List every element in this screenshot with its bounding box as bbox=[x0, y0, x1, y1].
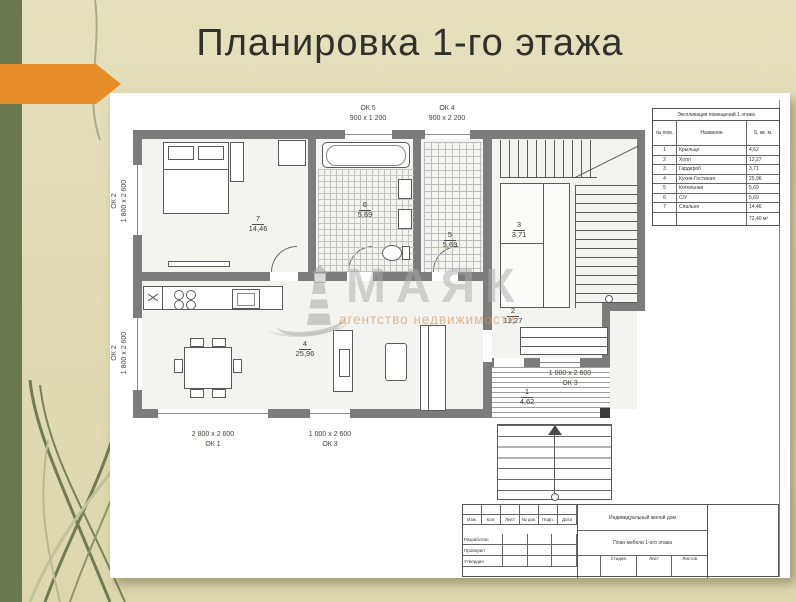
col-name: Название bbox=[677, 121, 747, 145]
room7-area: 14,46 bbox=[238, 225, 278, 234]
spacer bbox=[578, 556, 600, 576]
cell: 5 bbox=[653, 184, 677, 193]
stage-row: Стадия Лист Листов bbox=[578, 556, 707, 576]
col-area: S, кв. м. bbox=[747, 121, 779, 145]
door-opening bbox=[483, 330, 492, 362]
cell bbox=[520, 505, 539, 515]
cell bbox=[552, 534, 577, 545]
table-total-row: 72,40 м² bbox=[653, 213, 779, 225]
sink bbox=[398, 179, 412, 199]
sheet-title: План мебели 1-ого этажа bbox=[578, 531, 707, 556]
ok5-size: 900 x 1 200 bbox=[328, 114, 408, 124]
ok1-size: 2 800 x 2 600 bbox=[173, 430, 253, 440]
cell bbox=[539, 505, 558, 515]
stove-burner bbox=[174, 290, 184, 300]
cell bbox=[528, 556, 553, 567]
cell bbox=[503, 556, 528, 567]
toilet bbox=[382, 245, 402, 261]
cell: Гардероб bbox=[677, 165, 747, 174]
room-label-4: 4 25,96 bbox=[285, 340, 325, 358]
signature-row: Разработал bbox=[463, 534, 577, 545]
cell bbox=[482, 505, 501, 515]
cell bbox=[528, 545, 553, 556]
bedroom-wardrobe bbox=[278, 140, 306, 166]
room-label-3: 3 3,71 bbox=[499, 221, 539, 239]
col-num: № пом. bbox=[653, 121, 677, 145]
ok3-mark: ОК 3 bbox=[290, 440, 370, 450]
stage-cell: Стадия bbox=[600, 556, 636, 576]
room-label-1: 1 4,62 bbox=[507, 388, 547, 406]
rev-header: Дата bbox=[558, 515, 577, 525]
project-name: Индивидуальный жилой дом bbox=[578, 505, 707, 531]
blanket-line bbox=[164, 169, 228, 170]
cell: 4,62 bbox=[747, 146, 779, 155]
window-ok3-bottom bbox=[310, 409, 350, 418]
boiler-room-floor bbox=[424, 142, 482, 272]
door-opening bbox=[494, 358, 524, 367]
cell: 3 bbox=[653, 165, 677, 174]
label-ok3-bottom: 1 000 x 2 600 ОК 3 bbox=[290, 430, 370, 450]
total-area: 72,40 м² bbox=[747, 213, 779, 225]
table-row: 5 Котельная 5,69 bbox=[653, 184, 779, 194]
chair bbox=[190, 389, 204, 398]
floorplan-panel: ОК 5 900 x 1 200 ОК 4 900 x 2 200 ОК 2 1… bbox=[110, 93, 790, 578]
cell bbox=[501, 505, 520, 515]
porch-column bbox=[600, 408, 610, 418]
pillow bbox=[168, 146, 194, 160]
window-ok2-upper bbox=[133, 165, 142, 235]
wall bbox=[637, 130, 645, 311]
bathtub bbox=[322, 142, 410, 168]
cell: Спальня bbox=[677, 203, 747, 212]
table-row: 7 Спальня 14,46 bbox=[653, 203, 779, 213]
cell: 5,69 bbox=[747, 194, 779, 203]
chair bbox=[212, 389, 226, 398]
nightstand bbox=[230, 142, 244, 182]
table-row: 4 Кухня-Гостиная 25,96 bbox=[653, 175, 779, 185]
cell bbox=[552, 545, 577, 556]
cell bbox=[503, 545, 528, 556]
label-ok3-porch: 1 000 x 2 600 ОК 3 bbox=[525, 369, 615, 389]
window-ok4 bbox=[425, 130, 470, 139]
ok2-size: 1 800 x 2 600 bbox=[120, 166, 130, 236]
wall bbox=[413, 139, 421, 280]
explication-table: Экспликация помещений 1 этажа № пом. Наз… bbox=[652, 108, 780, 226]
rev-header: № док. bbox=[520, 515, 539, 525]
cell bbox=[558, 505, 577, 515]
kitchen-counter bbox=[143, 286, 283, 310]
room3-area: 3,71 bbox=[499, 231, 539, 240]
label-ok2-lower: ОК 2 1 800 x 2 600 bbox=[110, 318, 128, 388]
room-label-7: 7 14,46 bbox=[238, 215, 278, 233]
slide: Планировка 1-го этажа bbox=[0, 0, 796, 602]
ok4-size: 900 x 2 200 bbox=[407, 114, 487, 124]
dining-table bbox=[184, 347, 232, 389]
room5-area: 5,69 bbox=[430, 241, 470, 250]
cell bbox=[677, 213, 747, 225]
table-title: Экспликация помещений 1 этажа bbox=[653, 109, 779, 121]
room6-area: 5,69 bbox=[345, 211, 385, 220]
cell: 1 bbox=[653, 146, 677, 155]
rev-header: Лист bbox=[501, 515, 520, 525]
stamp-right-cell bbox=[708, 505, 780, 578]
ok2-size: 1 800 x 2 600 bbox=[120, 318, 130, 388]
stage-cell: Листов bbox=[671, 556, 707, 576]
window-ok1 bbox=[158, 409, 268, 418]
signature-row: Проверил bbox=[463, 545, 577, 556]
room-label-5: 5 5,69 bbox=[430, 231, 470, 249]
tv-console bbox=[333, 330, 353, 392]
chair bbox=[233, 359, 242, 373]
stage-cell: Лист bbox=[636, 556, 672, 576]
table-row: 6 С/У 5,69 bbox=[653, 194, 779, 204]
label-ok4: ОК 4 900 x 2 200 bbox=[407, 104, 487, 124]
signature-row: Утвердил bbox=[463, 556, 577, 567]
sofa bbox=[420, 325, 446, 411]
rev-header: Подп. bbox=[539, 515, 558, 525]
cell: Котельная bbox=[677, 184, 747, 193]
watermark-subtitle: агентство недвижимости bbox=[339, 313, 516, 327]
sink bbox=[398, 209, 412, 229]
sign-label: Разработал bbox=[463, 534, 503, 545]
window-ok5 bbox=[345, 130, 392, 139]
label-ok5: ОК 5 900 x 1 200 bbox=[328, 104, 408, 124]
kitchen-sink-bowl bbox=[237, 293, 255, 306]
toilet-tank bbox=[402, 246, 410, 260]
cell: 14,46 bbox=[747, 203, 779, 212]
wall bbox=[308, 139, 316, 280]
rev-header: Изм. bbox=[463, 515, 482, 525]
stairs-post bbox=[605, 295, 613, 303]
chair bbox=[174, 359, 183, 373]
cell bbox=[528, 534, 553, 545]
cell: 5,69 bbox=[747, 184, 779, 193]
stove-burner bbox=[186, 300, 196, 310]
orange-arrow-shape bbox=[0, 64, 96, 104]
cell: Крыльцо bbox=[677, 146, 747, 155]
cell: 7 bbox=[653, 203, 677, 212]
cell: 12,27 bbox=[747, 156, 779, 165]
cell bbox=[653, 213, 677, 225]
cell: 6 bbox=[653, 194, 677, 203]
revision-grid: Изм. Кол. Лист № док. Подп. Дата Разрабо… bbox=[463, 505, 578, 578]
room4-area: 25,96 bbox=[285, 350, 325, 359]
window-ok3-porch bbox=[540, 358, 580, 367]
tv-screen bbox=[339, 349, 350, 377]
watermark-name: МАЯК bbox=[346, 263, 524, 311]
bed bbox=[163, 142, 229, 214]
room1-area: 4,62 bbox=[507, 398, 547, 407]
cell: 4 bbox=[653, 175, 677, 184]
cell: С/У bbox=[677, 194, 747, 203]
sofa-back-line bbox=[428, 326, 429, 410]
up-arrow-icon bbox=[548, 425, 562, 435]
bench-line bbox=[521, 337, 607, 338]
door-opening bbox=[270, 272, 298, 281]
ok2-mark: ОК 2 bbox=[110, 166, 120, 236]
slide-title: Планировка 1-го этажа bbox=[120, 22, 700, 65]
stove-burner bbox=[186, 290, 196, 300]
cell: 3,71 bbox=[747, 165, 779, 174]
cell bbox=[463, 505, 482, 515]
bedroom-dresser bbox=[168, 261, 230, 267]
pillow bbox=[198, 146, 224, 160]
cell: 2 bbox=[653, 156, 677, 165]
table-row: 2 Холл 12,27 bbox=[653, 156, 779, 166]
steps-start-marker bbox=[551, 493, 559, 501]
titles-section: Индивидуальный жилой дом План мебели 1-о… bbox=[578, 505, 708, 578]
window-ok2-lower bbox=[133, 318, 142, 390]
label-ok1: 2 800 x 2 600 ОК 1 bbox=[173, 430, 253, 450]
cell: Холл bbox=[677, 156, 747, 165]
title-block: Изм. Кол. Лист № док. Подп. Дата Разрабо… bbox=[462, 504, 779, 577]
rev-header: Кол. bbox=[482, 515, 501, 525]
ok1-mark: ОК 1 bbox=[173, 440, 253, 450]
ok2-mark: ОК 2 bbox=[110, 318, 120, 388]
revision-empty-row bbox=[463, 505, 577, 515]
cell bbox=[503, 534, 528, 545]
kitchen-sink bbox=[232, 289, 260, 309]
watermark: МАЯК агентство недвижимости bbox=[295, 261, 585, 333]
lighthouse-icon bbox=[298, 265, 344, 327]
table-header: № пом. Название S, кв. м. bbox=[653, 121, 779, 146]
label-ok2-upper: ОК 2 1 800 x 2 600 bbox=[110, 166, 128, 236]
ok3-size: 1 000 x 2 600 bbox=[525, 369, 615, 379]
cell bbox=[552, 556, 577, 567]
cell: 25,96 bbox=[747, 175, 779, 184]
room-label-6: 6 5,69 bbox=[345, 201, 385, 219]
bench-line bbox=[521, 346, 607, 347]
sign-label: Утвердил bbox=[463, 556, 503, 567]
ok4-mark: ОК 4 bbox=[407, 104, 487, 114]
coffee-table bbox=[385, 343, 407, 381]
table-row: 3 Гардероб 3,71 bbox=[653, 165, 779, 175]
chair bbox=[190, 338, 204, 347]
lighthouse-cap bbox=[312, 265, 328, 273]
stove-burner bbox=[174, 300, 184, 310]
wardrobe-shelf-line bbox=[500, 243, 543, 244]
chair bbox=[212, 338, 226, 347]
steps-center-line bbox=[554, 426, 555, 498]
table-row: 1 Крыльцо 4,62 bbox=[653, 146, 779, 156]
cell: Кухня-Гостиная bbox=[677, 175, 747, 184]
revision-header-row: Изм. Кол. Лист № док. Подп. Дата bbox=[463, 515, 577, 525]
bathtub-inner bbox=[326, 145, 406, 166]
ok5-mark: ОК 5 bbox=[328, 104, 408, 114]
sign-label: Проверил bbox=[463, 545, 503, 556]
ok3-size: 1 000 x 2 600 bbox=[290, 430, 370, 440]
